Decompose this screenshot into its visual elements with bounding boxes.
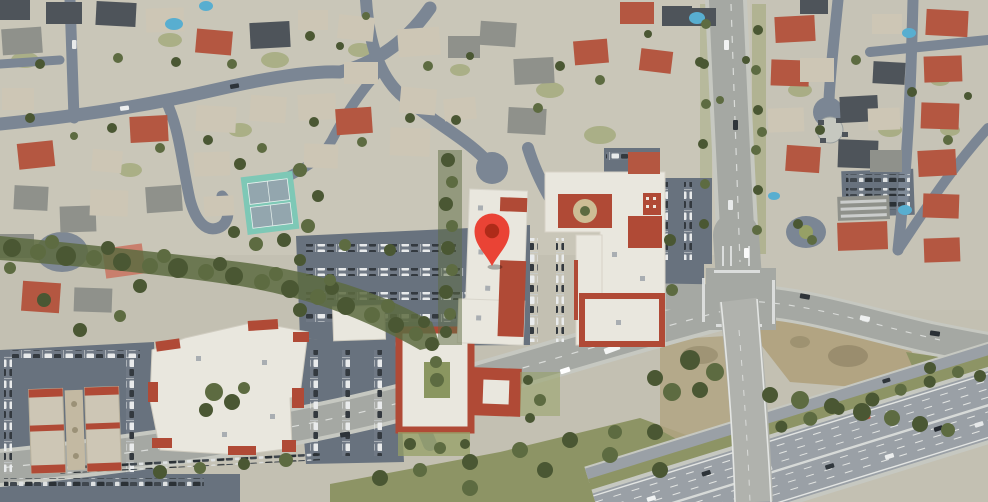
red-roof-building xyxy=(470,367,522,417)
tennis-court xyxy=(241,171,300,235)
tan-twin-buildings xyxy=(29,386,122,473)
office-complex-west xyxy=(148,319,309,455)
pin-inner-circle xyxy=(485,224,499,238)
map-viewport[interactable] xyxy=(0,0,988,502)
pin-shadow xyxy=(488,264,503,269)
red-outparcel-building xyxy=(628,152,660,174)
satellite-map[interactable] xyxy=(0,0,988,502)
